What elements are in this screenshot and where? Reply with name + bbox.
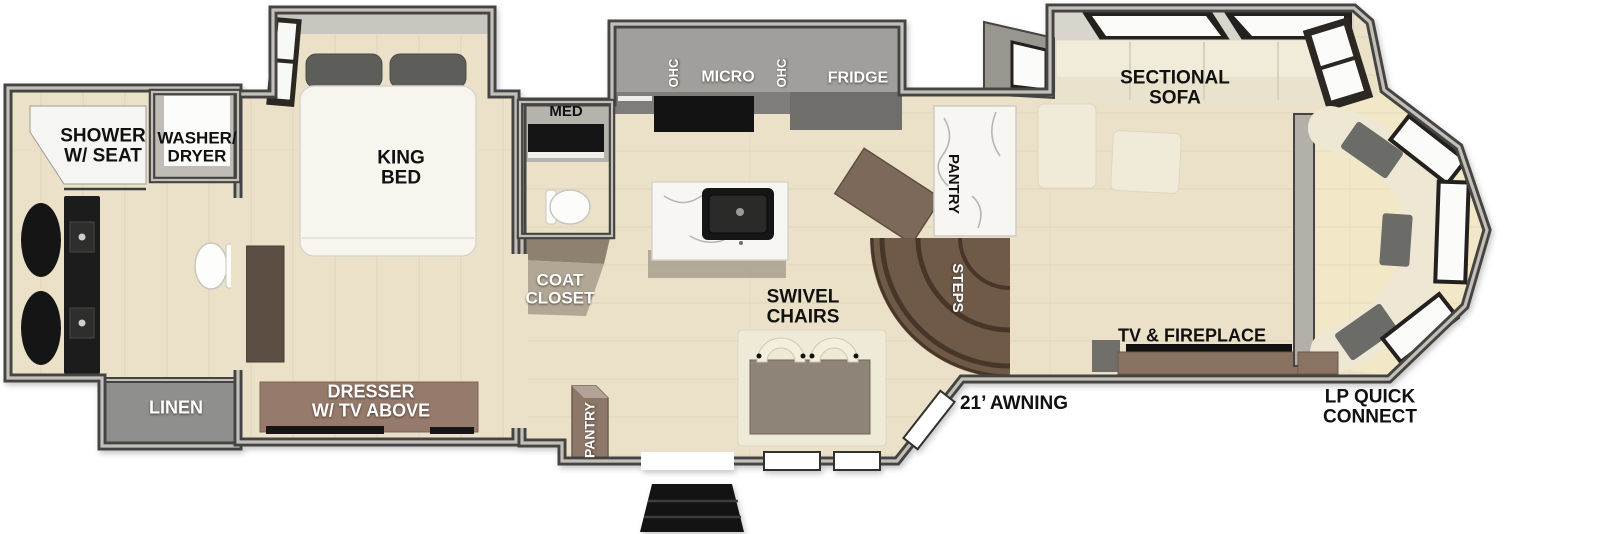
dinette-table: [750, 360, 870, 434]
window: [834, 452, 880, 470]
sink-bowl: [21, 203, 61, 277]
awning-label: 21’ AWNING: [960, 394, 1068, 414]
entry-pantry-label: PANTRY: [583, 402, 598, 458]
coat-closet-label: COAT CLOSET: [526, 271, 595, 306]
steps-label: STEPS: [949, 263, 965, 312]
rear-wall: [1294, 114, 1314, 366]
wardrobe: [246, 246, 284, 362]
pantry-tall-label: PANTRY: [945, 154, 961, 214]
bay-window: [1435, 182, 1468, 283]
toilet: [195, 243, 227, 289]
dinette: [738, 330, 886, 446]
med-label: MED: [549, 104, 582, 120]
rv-floorplan: SHOWER W/ SEAT WASHER/ DRYER LINEN KING …: [0, 0, 1600, 534]
ohc-left-label: OHC: [667, 59, 681, 88]
sectional-sofa-label: SECTIONAL SOFA: [1120, 68, 1230, 108]
ohc-right-label: OHC: [775, 59, 789, 88]
floorplan-drawing: [0, 0, 1600, 534]
fridge-label: FRIDGE: [828, 71, 888, 88]
window: [764, 452, 820, 470]
entry-steps: [640, 484, 744, 532]
faucet-icon: [79, 234, 86, 241]
faucet-icon: [736, 208, 744, 216]
med-cabinet: [528, 124, 604, 152]
linen-label: LINEN: [149, 399, 203, 418]
sink-bowl: [21, 291, 61, 365]
coat-closet: [522, 238, 610, 264]
cooktop: [654, 96, 754, 132]
toilet: [550, 190, 590, 224]
tv-icon: [266, 426, 384, 434]
shower-label: SHOWER W/ SEAT: [60, 126, 146, 166]
entry-door: [641, 452, 734, 470]
swivel-chairs-label: SWIVEL CHAIRS: [767, 287, 840, 327]
micro-label: MICRO: [701, 70, 754, 87]
window: [1012, 42, 1046, 90]
chaise: [1038, 104, 1096, 188]
lp-quick-connect-label: LP QUICK CONNECT: [1323, 387, 1417, 427]
dresser-label: DRESSER W/ TV ABOVE: [312, 382, 430, 419]
tv-fireplace-label: TV & FIREPLACE: [1118, 327, 1266, 346]
pillow: [306, 54, 382, 88]
faucet-icon: [79, 320, 86, 327]
rear-shelf: [1298, 352, 1338, 374]
pillow: [390, 54, 466, 88]
washer-dryer-label: WASHER/ DRYER: [157, 129, 236, 164]
doorway: [231, 198, 246, 370]
fridge-body: [790, 92, 902, 130]
ottoman: [1110, 130, 1181, 193]
pillow: [1379, 213, 1413, 267]
king-bed-label: KING BED: [377, 148, 425, 188]
